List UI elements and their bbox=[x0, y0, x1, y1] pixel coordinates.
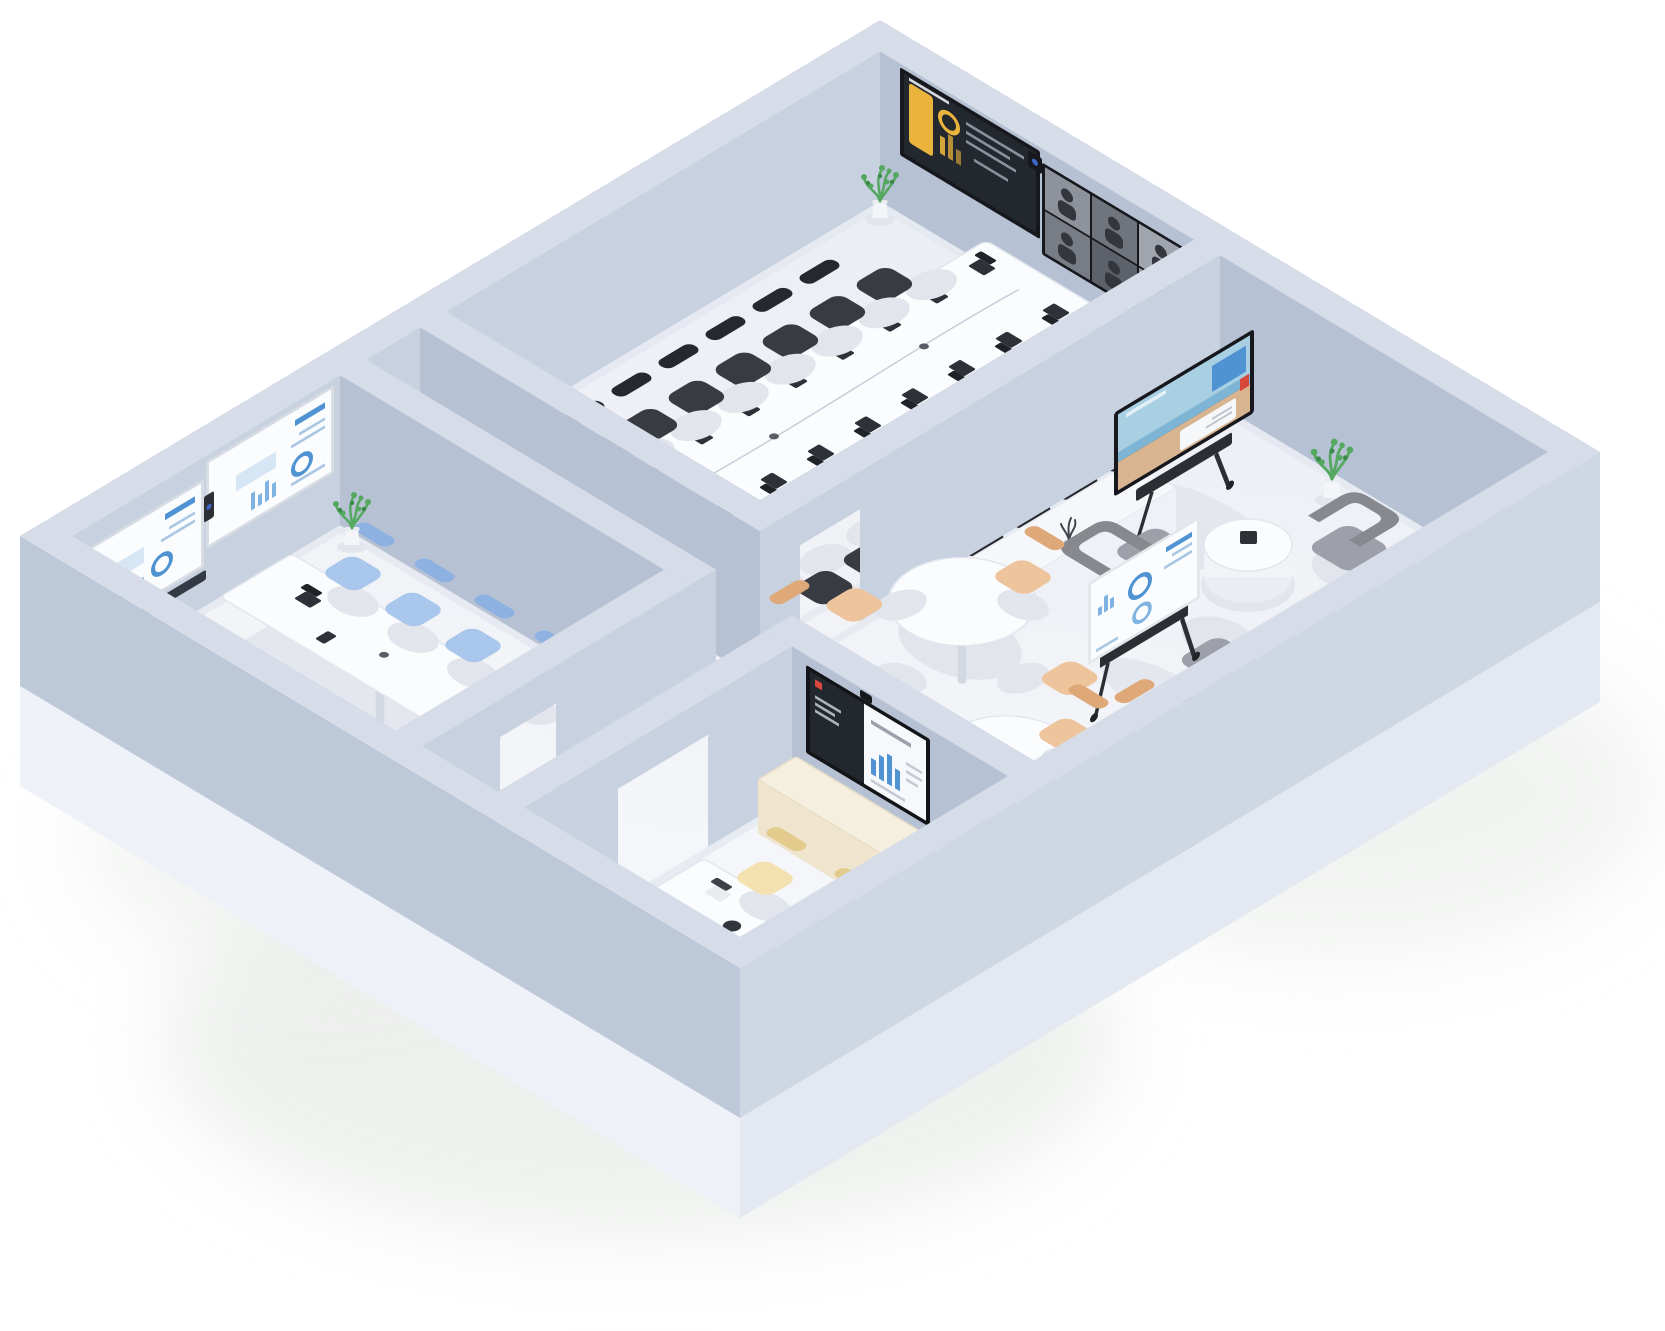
floorplan-canvas: Isometric 3D office floor plan render bbox=[0, 0, 1665, 1331]
coffee-table bbox=[1201, 519, 1295, 612]
speakerphone bbox=[1240, 531, 1257, 544]
floorplan-stage: Isometric 3D office floor plan render bbox=[0, 0, 1665, 1331]
